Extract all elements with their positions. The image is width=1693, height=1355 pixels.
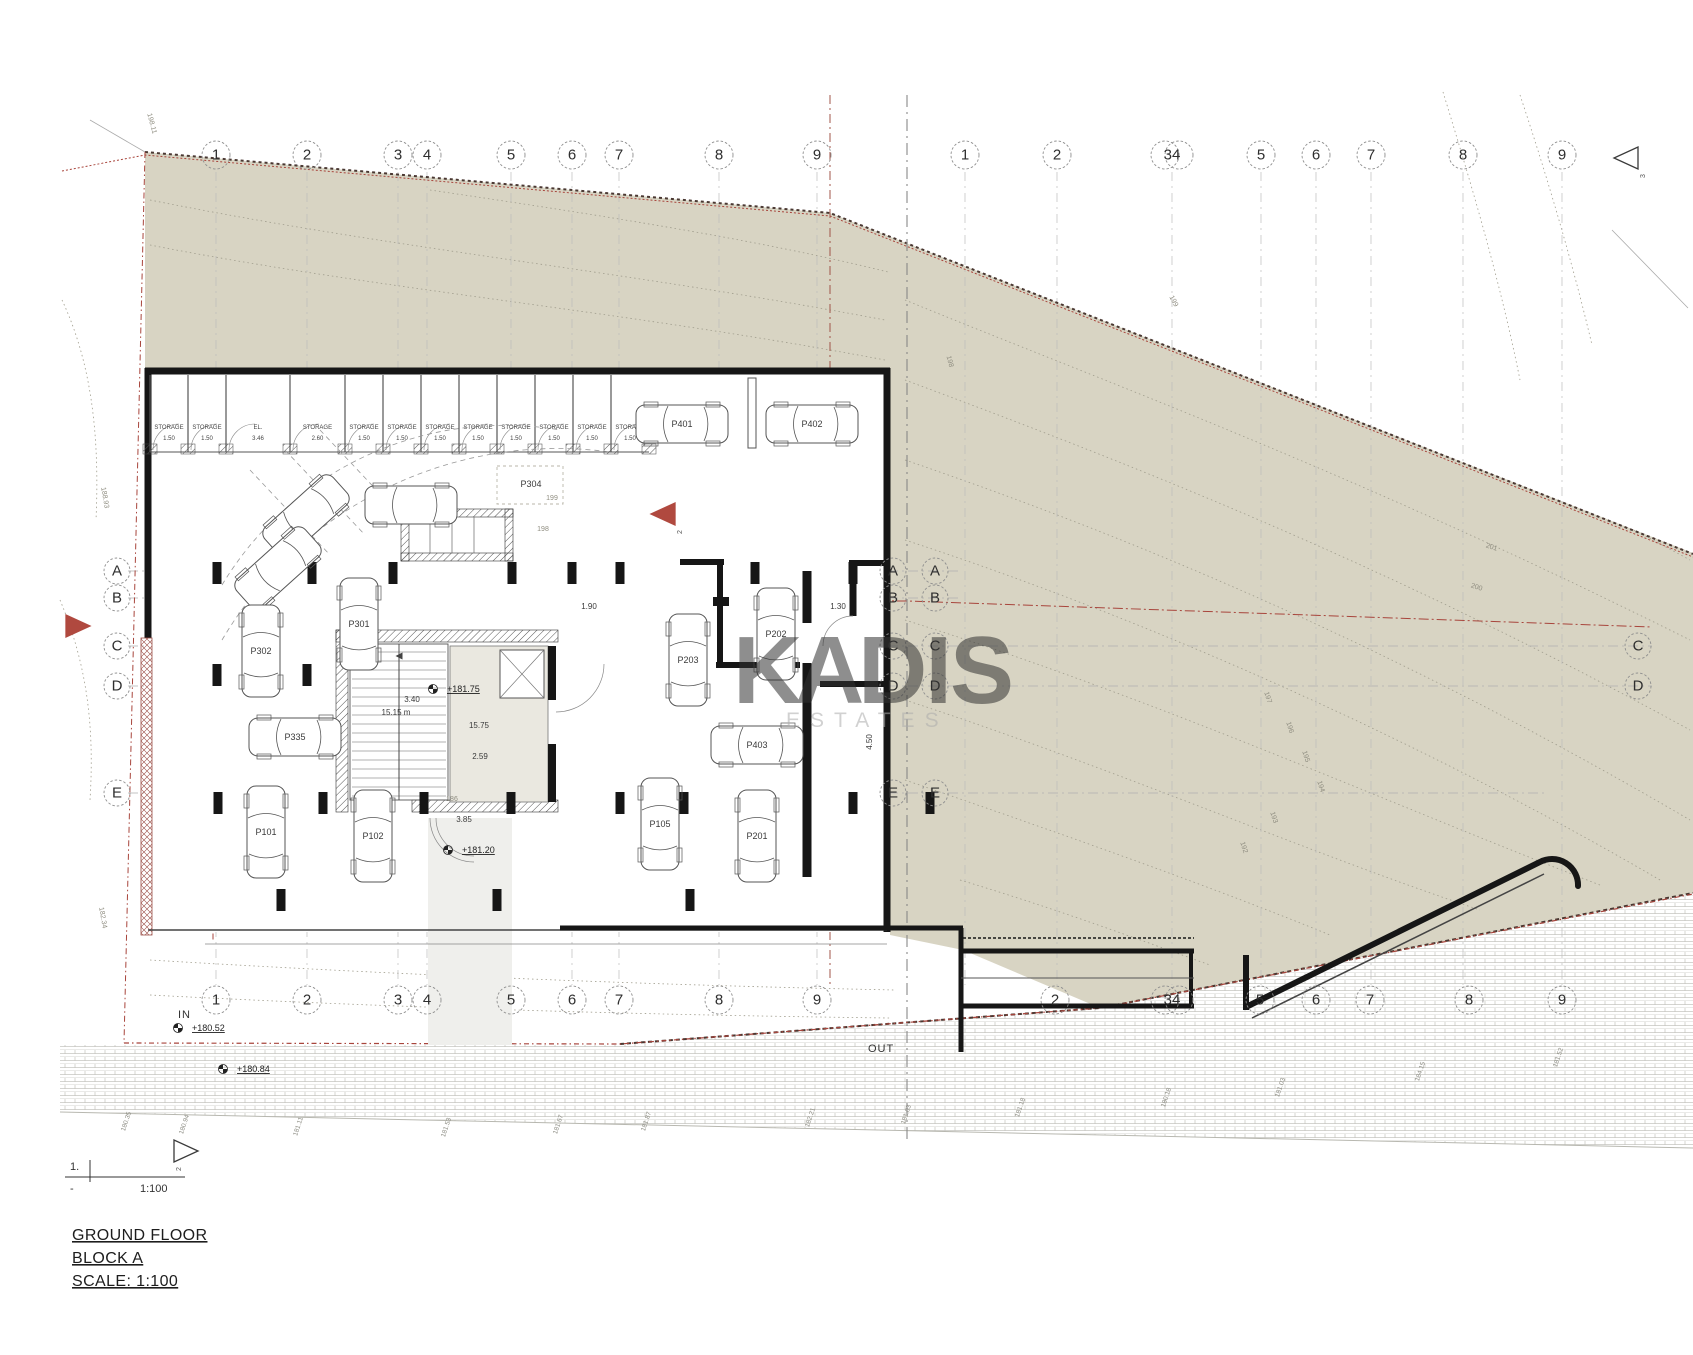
contour-label: 186 [446,796,458,803]
road-level-label: 180.94 [178,1114,191,1135]
grid-bubble-number: 9 [1558,992,1566,1009]
storage-label: STORAGE [154,425,183,431]
core-wall-black [548,744,556,802]
watermark-subtitle: ESTATES [786,709,949,732]
storage-dim: 1.50 [586,436,598,442]
row-letter-label: A [930,563,940,580]
storage-label: STORAGE [577,425,606,431]
parking-label: P335 [284,732,305,742]
storage-label: STORAGE [387,425,416,431]
corner-line [90,120,145,152]
contour-line [150,995,890,1018]
storage-divider-base [452,444,466,454]
parking-label: P402 [801,419,822,429]
grid-bubble-number: 6 [568,147,576,164]
row-letter: B [104,585,130,611]
storage-dim: 2.60 [312,436,324,442]
column [849,792,858,814]
contour-line [150,960,895,990]
row-letter-label: D [1633,678,1644,695]
row-letter-label: D [112,678,123,695]
storage-divider-base [219,444,233,454]
grid-bubble-number: 3 [394,992,402,1009]
row-letter-label: A [888,563,898,580]
grid-bubble-number: 5 [1256,992,1264,1009]
grid-bubble: 5 [1247,141,1275,169]
car-body [365,486,457,524]
row-letter: C [104,633,130,659]
drawing-scale: SCALE: 1:100 [72,1273,178,1290]
contour-label: 199 [1167,294,1179,308]
title-block: 1. - 1:100 GROUND FLOOR BLOCK A SCALE: 1… [65,1160,207,1290]
grid-bubble-number: 8 [1465,992,1473,1009]
row-letter-label: B [930,590,940,607]
storage-divider-base [181,444,195,454]
column [213,664,222,686]
grid-bubble-number: 6 [1312,992,1320,1009]
car [365,483,457,527]
grid-bubble-number: 8 [715,992,723,1009]
watermark: K A DIS ESTATES [733,617,1012,732]
grid-bubble: 8 [705,141,733,169]
level-marker: +181.20 [444,845,495,855]
section-triangle: 3 [1614,147,1647,178]
grid-bubble: 6 [558,141,586,169]
grid-bubble: 9 [803,986,831,1014]
watermark-a: A [795,617,862,724]
column [213,562,222,584]
grid-bubble-number: 2 [1051,992,1059,1009]
storage-divider-base [604,444,618,454]
core-wall [505,509,513,561]
column [616,792,625,814]
storage-dim: 1.50 [510,436,522,442]
storage-dim: 1.50 [624,436,636,442]
column [420,792,429,814]
level-marker: +181.75 [429,684,480,694]
grid-bubble-number: 7 [1367,147,1375,164]
storage-dim: 1.50 [396,436,408,442]
storage-dim: 1.50 [201,436,213,442]
road-level-label: 181.11 [292,1116,305,1137]
storage-divider-base [283,444,297,454]
parking-label: P403 [746,740,767,750]
column [493,889,502,911]
drawing-block: BLOCK A [72,1250,143,1267]
contour-label: 198 [537,526,549,533]
row-letter: A [104,558,130,584]
grid-bubble: 2 [293,986,321,1014]
storage-divider-base [376,444,390,454]
storage-divider-base [338,444,352,454]
contour-label: 198.11 [145,113,157,135]
grid-bubble: 1 [202,986,230,1014]
column [277,889,286,911]
grid-bubble: 2 [293,141,321,169]
parking-label: P101 [255,827,276,837]
contour-label: 188.93 [99,487,110,509]
grid-bubble-number: 34 [1164,147,1181,164]
storage-label: STORAGE [192,425,221,431]
grid-bubble: 9 [803,141,831,169]
floor-plan-sheet: STORAGE1.50STORAGE1.50EL.3.46STORAGE2.60… [0,0,1693,1355]
grid-bubble-number: 5 [507,992,515,1009]
column [751,562,760,584]
row-letter: D [104,673,130,699]
row-letter-label: C [1633,638,1644,655]
grid-bubble-number: 5 [507,147,515,164]
level-marker: +180.52 [174,1023,225,1033]
column [319,792,328,814]
storage-dim: 1.50 [472,436,484,442]
grid-bubble-number: 8 [715,147,723,164]
grid-bubble-number: 9 [813,147,821,164]
grid-bubble: 9 [1548,141,1576,169]
corner-line-tr [1612,230,1688,308]
grid-bubble: 3 [384,986,412,1014]
grid-bubble-number: 2 [1053,147,1061,164]
section-triangle-glyph [66,615,90,637]
grid-bubble: 8 [705,986,733,1014]
column [214,792,223,814]
column [686,889,695,911]
row-letter: E [104,780,130,806]
level-value: +181.20 [462,845,495,855]
grid-bubble: 34 [1151,141,1193,169]
section-triangle-number: 2 [677,530,684,534]
section-triangle: 2 [174,1140,198,1171]
section-triangle-glyph [1614,147,1638,169]
level-value: +181.75 [447,684,480,694]
grid-bubble-number: 4 [423,147,431,164]
sheet-number: 1. [70,1161,79,1173]
grid-bubble-number: 1 [212,992,220,1009]
grid-bubble-number: 2 [303,992,311,1009]
parking-label: P401 [671,419,692,429]
core-wall [401,553,513,561]
dimension-label: 2.59 [472,752,488,761]
level-marker-icon [178,1028,183,1033]
storage-dim: 3.46 [252,436,264,442]
retaining-wall-left [141,638,152,935]
column [507,792,516,814]
grid-bubble-number: 9 [813,992,821,1009]
parking-label: P203 [677,655,698,665]
grid-bubble-number: 9 [1558,147,1566,164]
storage-divider-base [414,444,428,454]
sheet-scale: 1:100 [140,1183,168,1195]
grid-bubble-number: 8 [1459,147,1467,164]
grid-bubble-number: 7 [615,992,623,1009]
drawing-title: GROUND FLOOR [72,1227,207,1244]
grid-bubble: 7 [605,141,633,169]
row-letter-label: B [888,590,898,607]
dimension-label: 3.85 [456,815,472,824]
grid-bubble-number: 2 [303,147,311,164]
contour-line [1520,95,1592,345]
grid-bubble: 1 [951,141,979,169]
contour-label: 199 [546,495,558,502]
parking-label: P105 [649,819,670,829]
parking-label: P301 [348,619,369,629]
grid-bubble-number: 1 [961,147,969,164]
storage-label: STORAGE [463,425,492,431]
contour-label: 182.34 [97,907,108,929]
grid-bubble-number: 34 [1164,992,1181,1009]
grid-bubble: 7 [605,986,633,1014]
column [680,792,689,814]
level-marker: +180.84 [219,1064,270,1074]
grid-bubble-number: 1 [212,147,220,164]
grid-bubble: 8 [1449,141,1477,169]
in-label: IN [178,1009,191,1021]
dimension-label: 1.30 [830,602,846,611]
column [568,562,577,584]
storage-label: STORAGE [425,425,454,431]
grid-bubble: 5 [497,141,525,169]
dimension-label: 3.40 [404,695,420,704]
storage-dim: 1.50 [358,436,370,442]
section-triangle [66,615,90,637]
grid-bubble: 6 [1302,141,1330,169]
row-letter-label: E [888,785,898,802]
section-triangle-number: 2 [176,1167,183,1171]
grid-bubble-number: 5 [1257,147,1265,164]
wall-chunk [713,597,729,606]
grid-bubble-number: 4 [423,992,431,1009]
out-label: OUT [868,1043,894,1055]
storage-dim: 1.50 [548,436,560,442]
core-wall-black [548,646,556,700]
grid-bubble-number: 7 [1366,992,1374,1009]
section-triangle-number: 3 [1640,174,1647,178]
grid-bubble-number: 6 [568,992,576,1009]
dimension-label: 15.15 m [382,708,411,717]
storage-label: STORAGE [349,425,378,431]
watermark-k: K [733,617,802,724]
dimension-label: 1.90 [581,602,597,611]
contour-line [62,300,97,520]
column [508,562,517,584]
grid-bubble: 6 [558,986,586,1014]
level-value: +180.84 [237,1064,270,1074]
column [616,562,625,584]
grid-bubble: 3 [384,141,412,169]
parking-space-label: P304 [520,479,541,489]
dimension-label: 15.75 [469,721,490,730]
grid-bubble: 4 [413,141,441,169]
column [389,562,398,584]
row-letter-label: C [112,638,123,655]
row-letter-label: E [112,785,122,802]
parking-label: P302 [250,646,271,656]
section-triangle-glyph [174,1140,198,1162]
storage-label: STORAGE [303,425,332,431]
grid-bubble: 7 [1357,141,1385,169]
level-marker-icon [174,1024,179,1029]
storage-dim: 1.50 [163,436,175,442]
sheet-dash: - [70,1183,74,1195]
parking-label: P102 [362,831,383,841]
grid-bubble-number: 6 [1312,147,1320,164]
contour-line [1443,92,1520,380]
watermark-dis: DIS [858,617,1012,724]
row-letter-label: A [112,563,122,580]
storage-label: EL. [253,425,262,431]
grid-bubble-number: 3 [394,147,402,164]
column [849,562,858,584]
storage-dim: 1.50 [434,436,446,442]
row-letter-label: B [112,590,122,607]
grid-bubble: 2 [1043,141,1071,169]
row-letter-label: E [930,785,940,802]
storage-divider-base [143,444,157,454]
storage-divider-base [490,444,504,454]
grid-bubble-number: 7 [615,147,623,164]
column [303,664,312,686]
dimension-label: 4.50 [865,734,874,750]
level-value: +180.52 [192,1023,225,1033]
parking-label: P201 [746,831,767,841]
